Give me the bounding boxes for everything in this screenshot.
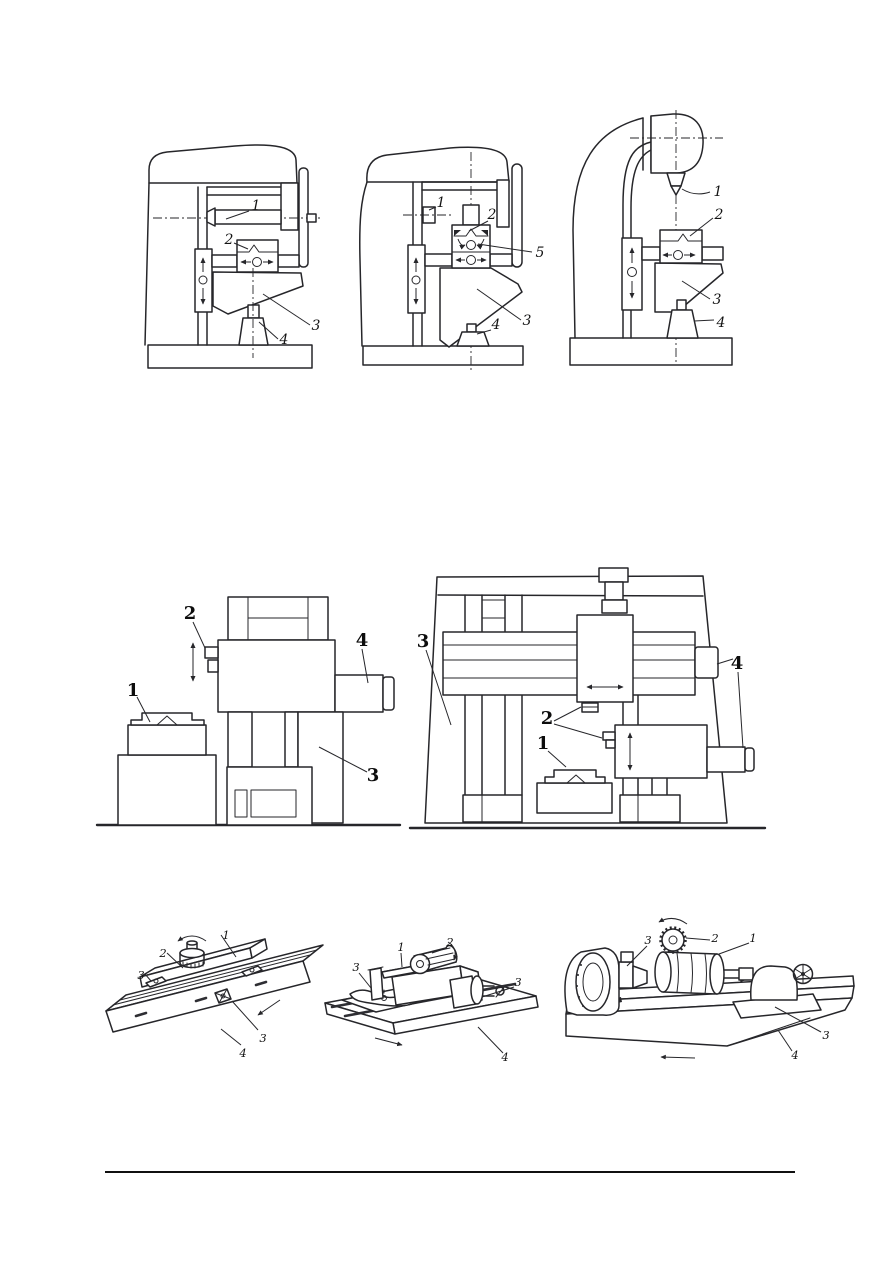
feed-arrow (375, 1038, 402, 1045)
callout-workpiece: 1 (749, 931, 756, 945)
callout-cutter: 2 (158, 946, 166, 960)
footer-rule (105, 1171, 795, 1173)
callout-cutter: 2 (184, 603, 197, 624)
figure-gantry-machine: 3 4 2 1 (405, 565, 775, 835)
figure-horizontal-milling-machine-scheme: 1 2 3 4 (135, 140, 330, 375)
callout-workpiece: 2 (714, 207, 724, 223)
callout-table: 4 (238, 1046, 246, 1060)
callout-ram: 4 (731, 653, 744, 674)
feed-arrow (661, 1057, 695, 1058)
callout-workpiece: 2 (487, 207, 497, 223)
figure-vertical-milling-machine-scheme: 1 2 5 3 4 (355, 140, 565, 375)
workpiece-stand (537, 770, 612, 813)
side-head (603, 725, 754, 778)
callout-spindle: 1 (714, 184, 723, 200)
vertical-slide (622, 238, 642, 310)
figure-single-column-machine: 1 2 4 3 (95, 575, 405, 835)
callout-cutter: 2 (445, 935, 453, 949)
document-page: 1 2 3 4 (0, 0, 893, 1263)
figure-face-milling-setup: 1 2 3 3 4 (100, 915, 325, 1065)
callout-workpiece: 1 (222, 928, 229, 942)
callout-column: 3 (367, 765, 380, 786)
callout-table: 4 (500, 1050, 508, 1064)
machine-body (570, 110, 732, 365)
callout-dividing-head: 3 (644, 933, 651, 947)
callout-workpiece: 1 (537, 733, 550, 754)
table-and-workpiece (642, 230, 723, 263)
callout-swivel-table: 5 (536, 245, 545, 261)
callout-knee: 3 (523, 313, 532, 329)
callout-gearbox: 1 (437, 195, 446, 211)
callout-cutters: 2 (541, 708, 554, 729)
figure-vertical-mill-round-column-scheme: 1 2 3 4 (555, 110, 745, 375)
callout-clamp-left: 3 (137, 968, 144, 982)
callout-vise-jaw: 3 (514, 975, 521, 989)
callout-cutter: 2 (710, 931, 718, 945)
callout-tailstock: 3 (822, 1028, 829, 1042)
figure-vise-milling-setup: 1 2 3 3 4 (320, 920, 550, 1065)
figure-dividing-head-setup: 3 2 1 3 4 (555, 910, 860, 1070)
callout-knee: 3 (312, 318, 321, 334)
workpiece-cylinder (655, 952, 724, 994)
vertical-slide (408, 245, 425, 313)
callout-workpiece: 1 (127, 680, 140, 701)
rotation-arrow (659, 918, 687, 924)
callout-workpiece: 1 (397, 940, 404, 954)
callout-support: 4 (279, 332, 289, 348)
vertical-slide (195, 249, 212, 312)
callout-clamp-right: 3 (259, 1031, 266, 1045)
callout-ram: 4 (356, 630, 369, 651)
workpiece-stand (118, 713, 216, 825)
spindle (667, 173, 685, 195)
gear-cutter (659, 918, 687, 952)
callout-workpiece: 2 (224, 232, 234, 248)
callout-table: 4 (790, 1048, 798, 1062)
callout-support: 4 (491, 317, 501, 333)
callout-knee: 3 (713, 292, 722, 308)
callout-support: 4 (716, 315, 726, 331)
feed-gearbox (403, 207, 453, 223)
callout-arbor: 1 (252, 198, 261, 214)
vertical-head (577, 615, 633, 712)
feed-arrow (258, 1000, 280, 1015)
callout-frame: 3 (417, 631, 430, 652)
callout-clamp-left: 3 (352, 960, 359, 974)
